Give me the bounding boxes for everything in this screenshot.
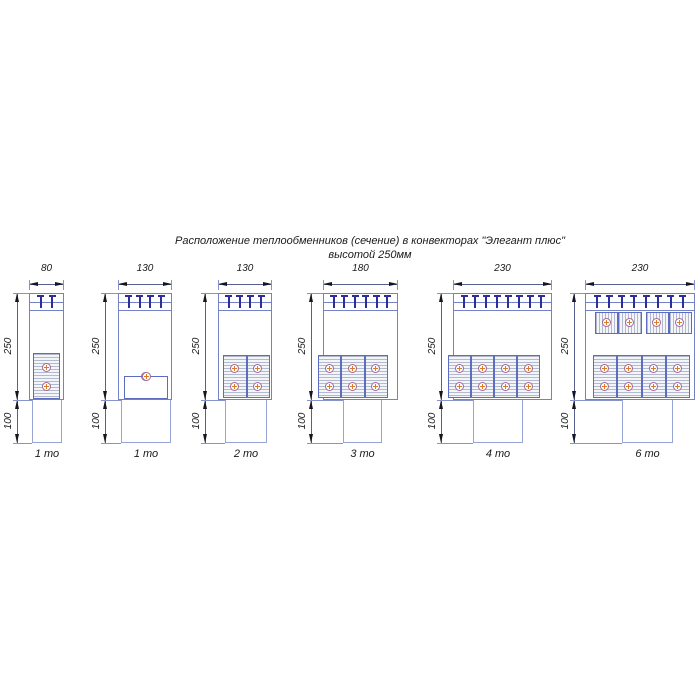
tube-cross-icon (146, 374, 147, 379)
dim-arrow-up (439, 400, 443, 409)
dim-width-label: 130 (193, 263, 297, 274)
dim-arrow-left (323, 282, 332, 286)
heat-exchanger-unit (34, 354, 59, 398)
tube-circle (673, 382, 682, 391)
tube-cross-icon (604, 384, 605, 389)
tube-cross-icon (505, 384, 506, 389)
extension-line (101, 293, 118, 294)
grille-t-profile-icon (494, 295, 501, 308)
tube-circle (42, 382, 51, 391)
dim-line (453, 284, 552, 285)
heat-exchanger-unit (319, 356, 340, 397)
t-stem (139, 297, 141, 308)
tube-cross-icon (606, 320, 607, 325)
tube-cross-icon (653, 366, 654, 371)
dim-arrow-up (15, 293, 19, 302)
dim-arrow-down (103, 391, 107, 400)
tube-cross-icon (46, 365, 47, 370)
t-stem (376, 297, 378, 308)
tube-circle (325, 382, 334, 391)
grille-t-profile-icon (330, 295, 337, 308)
heat-exchanger-row (124, 376, 168, 399)
grille-t-profile-icon (125, 295, 132, 308)
heat-exchanger-unit (516, 356, 539, 397)
dim-width-label: 230 (428, 263, 577, 274)
tube-cross-icon (375, 366, 376, 371)
tube-cross-icon (629, 320, 630, 325)
extension-line (453, 280, 454, 290)
tube-cross-icon (505, 366, 506, 371)
tube-cross-icon (528, 384, 529, 389)
t-stem (128, 297, 130, 308)
t-stem (40, 297, 42, 308)
grille-t-profile-icon (258, 295, 265, 308)
tube-circle (253, 382, 262, 391)
tube-circle (649, 364, 658, 373)
extension-line (570, 400, 622, 401)
t-stem (333, 297, 335, 308)
dim-arrow-up (103, 293, 107, 302)
extension-line (171, 280, 172, 290)
extension-line (307, 443, 343, 444)
dim-arrow-up (572, 293, 576, 302)
extension-line (101, 443, 121, 444)
extension-line (397, 280, 398, 290)
tube-cross-icon (628, 384, 629, 389)
t-stem (228, 297, 230, 308)
grille-t-profile-icon (679, 295, 686, 308)
dim-duct-height-label: 100 (560, 401, 572, 441)
t-stem (540, 297, 542, 308)
grille-t-profile-icon (655, 295, 662, 308)
tube-cross-icon (234, 384, 235, 389)
dim-line (323, 284, 398, 285)
extension-line (551, 280, 552, 290)
grille-t-profile-icon (147, 295, 154, 308)
heat-exchanger-unit (470, 356, 493, 397)
extension-line (13, 293, 29, 294)
convector-count-label: 1 то (116, 448, 176, 460)
grille-t-profile-icon (341, 295, 348, 308)
grille-t-profile-icon (225, 295, 232, 308)
tube-circle (501, 382, 510, 391)
t-stem (386, 297, 388, 308)
t-stem (596, 297, 598, 308)
dim-arrow-down (309, 434, 313, 443)
heat-exchanger-unit (224, 356, 246, 397)
grille-t-profile-icon (618, 295, 625, 308)
heat-exchanger-row (33, 353, 60, 399)
t-stem (670, 297, 672, 308)
extension-line (101, 400, 121, 401)
tube-circle (478, 382, 487, 391)
grille-line (29, 302, 64, 303)
grille-t-profile-icon (472, 295, 479, 308)
tube-circle (230, 382, 239, 391)
heat-exchanger-cell (617, 313, 640, 333)
dim-width-label: 80 (4, 263, 89, 274)
tube-cross-icon (329, 384, 330, 389)
tube-cross-icon (677, 366, 678, 371)
tube-cross-icon (329, 366, 330, 371)
duct (32, 400, 62, 443)
grille-t-profile-icon (538, 295, 545, 308)
title-line-2: высотой 250мм (40, 248, 700, 262)
extension-line (271, 280, 272, 290)
duct (343, 400, 382, 443)
dim-height-label: 250 (297, 326, 309, 366)
dim-arrow-left (585, 282, 594, 286)
heat-exchanger-unit (595, 312, 642, 334)
heat-exchanger-row (595, 312, 692, 334)
tube-cross-icon (656, 320, 657, 325)
tube-circle (652, 318, 661, 327)
dim-arrow-down (15, 434, 19, 443)
dim-arrow-down (103, 434, 107, 443)
t-stem (260, 297, 262, 308)
extension-line (218, 280, 219, 290)
tube-circle (524, 382, 533, 391)
convector-count-label: 1 то (17, 448, 77, 460)
t-stem (633, 297, 635, 308)
tube-circle (625, 318, 634, 327)
tube-circle (455, 364, 464, 373)
t-stem (343, 297, 345, 308)
grille-t-profile-icon (630, 295, 637, 308)
t-stem (608, 297, 610, 308)
dim-arrow-down (203, 391, 207, 400)
dim-duct-height-label: 100 (427, 401, 439, 441)
tube-circle (455, 382, 464, 391)
t-stem (160, 297, 162, 308)
extension-line (201, 400, 225, 401)
extension-line (570, 443, 622, 444)
duct (225, 400, 267, 443)
grille-t-profile-icon (643, 295, 650, 308)
tube-circle (325, 364, 334, 373)
dim-arrow-up (309, 400, 313, 409)
grille-line (29, 310, 64, 311)
dim-arrow-down (439, 434, 443, 443)
extension-line (694, 280, 695, 290)
dim-arrow-up (203, 293, 207, 302)
dim-duct-height-label: 100 (191, 401, 203, 441)
t-stem (239, 297, 241, 308)
heat-exchanger-unit (493, 356, 516, 397)
convector-count-label: 4 то (468, 448, 528, 460)
dim-height-label: 250 (91, 326, 103, 366)
t-stem (645, 297, 647, 308)
grille-line (218, 310, 272, 311)
dim-arrow-up (103, 400, 107, 409)
tube-circle (371, 382, 380, 391)
extension-line (63, 280, 64, 290)
dim-height-label: 250 (3, 326, 15, 366)
grille-t-profile-icon (483, 295, 490, 308)
duct (473, 400, 523, 443)
grille-t-profile-icon (373, 295, 380, 308)
heat-exchanger-unit (665, 356, 689, 397)
heat-exchanger-row (223, 355, 270, 398)
t-stem (149, 297, 151, 308)
heat-exchanger-unit (340, 356, 363, 397)
extension-line (13, 400, 32, 401)
grille-line (453, 310, 552, 311)
tube-circle (501, 364, 510, 373)
duct (622, 400, 673, 443)
extension-line (585, 280, 586, 290)
tube-cross-icon (257, 366, 258, 371)
grille-t-profile-icon (606, 295, 613, 308)
dim-line (205, 293, 206, 443)
tube-circle (602, 318, 611, 327)
grille-t-profile-icon (362, 295, 369, 308)
t-stem (51, 297, 53, 308)
grille-t-profile-icon (527, 295, 534, 308)
dim-width-label: 180 (298, 263, 423, 274)
t-stem (249, 297, 251, 308)
tube-circle (230, 364, 239, 373)
tube-cross-icon (352, 366, 353, 371)
tube-circle (624, 382, 633, 391)
heat-exchanger-unit (246, 356, 270, 397)
tube-circle (600, 382, 609, 391)
title-line-1: Расположение теплообменников (сечение) в… (40, 234, 700, 248)
convector-count-label: 3 то (333, 448, 393, 460)
tube-circle (624, 364, 633, 373)
tube-cross-icon (482, 384, 483, 389)
dim-arrow-down (203, 434, 207, 443)
grille-t-profile-icon (461, 295, 468, 308)
tube-circle (478, 364, 487, 373)
t-stem (496, 297, 498, 308)
dim-line (441, 293, 442, 443)
heat-exchanger-unit (125, 377, 167, 398)
t-stem (463, 297, 465, 308)
heat-exchanger-row (593, 355, 690, 398)
tube-cross-icon (352, 384, 353, 389)
dim-width-label: 130 (93, 263, 197, 274)
heat-exchanger-unit (616, 356, 640, 397)
extension-line (437, 293, 453, 294)
dim-line (17, 293, 18, 443)
tube-cross-icon (46, 384, 47, 389)
dim-arrow-left (453, 282, 462, 286)
dim-arrow-down (572, 391, 576, 400)
t-stem (682, 297, 684, 308)
duct (121, 400, 171, 443)
tube-cross-icon (375, 384, 376, 389)
heat-exchanger-unit (646, 312, 693, 334)
tube-cross-icon (679, 320, 680, 325)
t-stem (657, 297, 659, 308)
extension-line (307, 400, 343, 401)
t-stem (365, 297, 367, 308)
tube-circle (524, 364, 533, 373)
heat-exchanger-unit (594, 356, 616, 397)
tube-circle (673, 364, 682, 373)
grille-t-profile-icon (236, 295, 243, 308)
grille-line (585, 310, 695, 311)
tube-cross-icon (677, 384, 678, 389)
convector-count-label: 2 то (216, 448, 276, 460)
drawing-title: Расположение теплообменников (сечение) в… (40, 234, 700, 262)
extension-line (570, 293, 585, 294)
t-stem (518, 297, 520, 308)
t-stem (507, 297, 509, 308)
dim-duct-height-label: 100 (91, 401, 103, 441)
dim-arrow-up (309, 293, 313, 302)
extension-line (437, 400, 473, 401)
heat-exchanger-unit (449, 356, 470, 397)
tube-circle (649, 382, 658, 391)
dim-line (105, 293, 106, 443)
dim-arrow-up (439, 293, 443, 302)
tube-cross-icon (257, 384, 258, 389)
tube-cross-icon (459, 366, 460, 371)
tube-circle (675, 318, 684, 327)
grille-t-profile-icon (136, 295, 143, 308)
grille-t-profile-icon (505, 295, 512, 308)
tube-circle (42, 363, 51, 372)
dim-arrow-left (218, 282, 227, 286)
dim-arrow-down (439, 391, 443, 400)
heat-exchanger-unit (641, 356, 665, 397)
tube-cross-icon (604, 366, 605, 371)
extension-line (118, 280, 119, 290)
dim-line (311, 293, 312, 443)
tube-circle (348, 364, 357, 373)
extension-line (323, 280, 324, 290)
extension-line (201, 443, 225, 444)
dim-height-label: 250 (560, 326, 572, 366)
heat-exchanger-cell (668, 313, 691, 333)
grille-t-profile-icon (49, 295, 56, 308)
dim-arrow-up (203, 400, 207, 409)
tube-cross-icon (653, 384, 654, 389)
extension-line (13, 443, 32, 444)
grille-line (118, 310, 172, 311)
dim-arrow-up (572, 400, 576, 409)
extension-line (307, 293, 323, 294)
tube-circle (142, 372, 151, 381)
dim-arrow-down (572, 434, 576, 443)
grille-t-profile-icon (37, 295, 44, 308)
dim-duct-height-label: 100 (297, 401, 309, 441)
dim-arrow-left (29, 282, 38, 286)
grille-t-profile-icon (384, 295, 391, 308)
t-stem (621, 297, 623, 308)
tube-cross-icon (459, 384, 460, 389)
tube-cross-icon (528, 366, 529, 371)
grille-t-profile-icon (667, 295, 674, 308)
dim-height-label: 250 (427, 326, 439, 366)
tube-cross-icon (234, 366, 235, 371)
tube-cross-icon (482, 366, 483, 371)
t-stem (485, 297, 487, 308)
grille-line (323, 310, 398, 311)
tube-circle (600, 364, 609, 373)
dim-arrow-up (15, 400, 19, 409)
grille-t-profile-icon (352, 295, 359, 308)
t-stem (529, 297, 531, 308)
dim-line (585, 284, 695, 285)
grille-t-profile-icon (594, 295, 601, 308)
heat-exchanger-cell (596, 313, 617, 333)
t-stem (474, 297, 476, 308)
t-stem (354, 297, 356, 308)
tube-cross-icon (628, 366, 629, 371)
heat-exchanger-row (318, 355, 388, 398)
dim-height-label: 250 (191, 326, 203, 366)
drawing-canvas: Расположение теплообменников (сечение) в… (0, 0, 700, 700)
extension-line (437, 443, 473, 444)
heat-exchanger-cell (647, 313, 668, 333)
tube-circle (348, 382, 357, 391)
dim-width-label: 230 (560, 263, 700, 274)
dim-arrow-down (15, 391, 19, 400)
dim-arrow-left (118, 282, 127, 286)
extension-line (201, 293, 218, 294)
heat-exchanger-unit (364, 356, 387, 397)
dim-duct-height-label: 100 (3, 401, 15, 441)
tube-circle (253, 364, 262, 373)
extension-line (29, 280, 30, 290)
dim-line (574, 293, 575, 443)
dim-arrow-down (309, 391, 313, 400)
heat-exchanger-row (448, 355, 540, 398)
grille-t-profile-icon (516, 295, 523, 308)
tube-circle (371, 364, 380, 373)
grille-t-profile-icon (247, 295, 254, 308)
grille-t-profile-icon (158, 295, 165, 308)
convector-count-label: 6 то (618, 448, 678, 460)
